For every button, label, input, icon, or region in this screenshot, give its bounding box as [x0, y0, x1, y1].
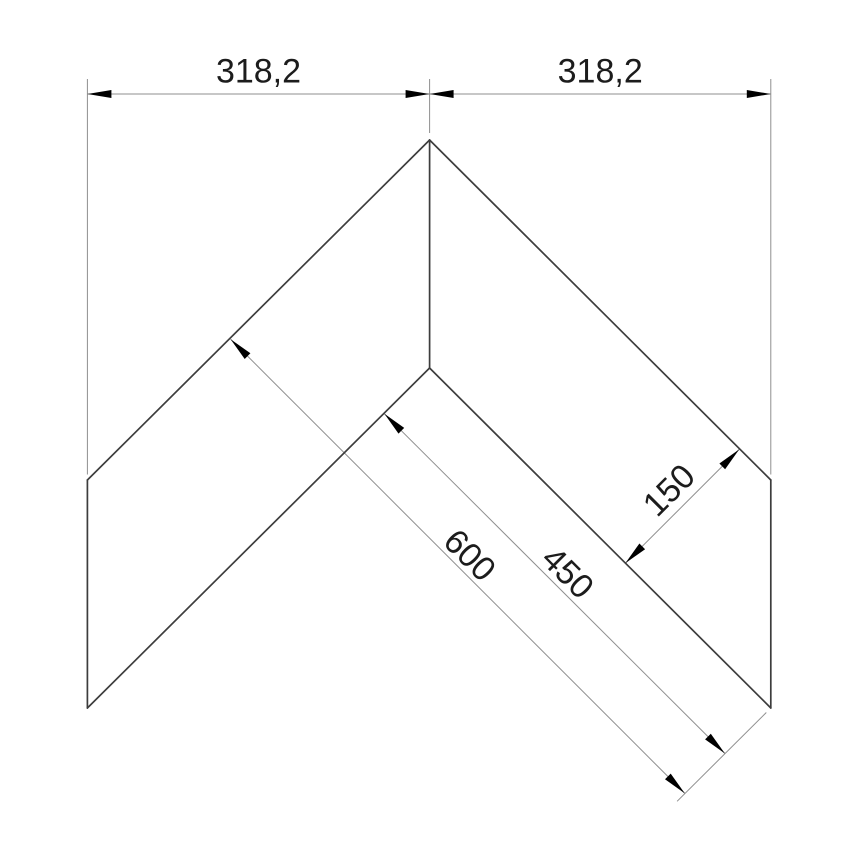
svg-text:318,2: 318,2 [558, 53, 643, 91]
svg-text:318,2: 318,2 [216, 53, 301, 91]
